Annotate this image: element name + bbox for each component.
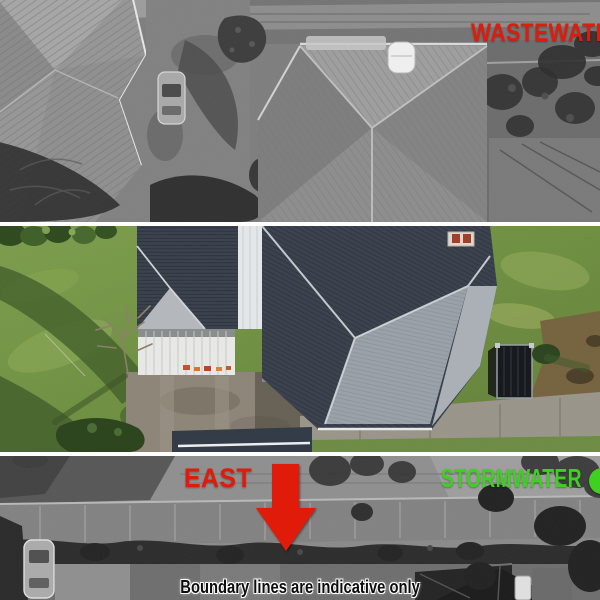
stormwater-label: STORMWATER <box>441 465 582 491</box>
property-aerial-composite: WASTEWATER <box>0 0 600 600</box>
boundary-note: Boundary lines are indicative only <box>0 577 600 598</box>
aerial-panel-middle <box>0 226 600 452</box>
wastewater-label: WASTEWATER <box>471 21 600 46</box>
aerial-scene-middle <box>0 226 600 452</box>
down-arrow-icon <box>250 460 320 560</box>
aerial-panel-bottom: EAST STORMWATER Boundary lines are indic… <box>0 456 600 600</box>
east-label: EAST <box>184 465 252 492</box>
aerial-panel-top: WASTEWATER <box>0 0 600 222</box>
